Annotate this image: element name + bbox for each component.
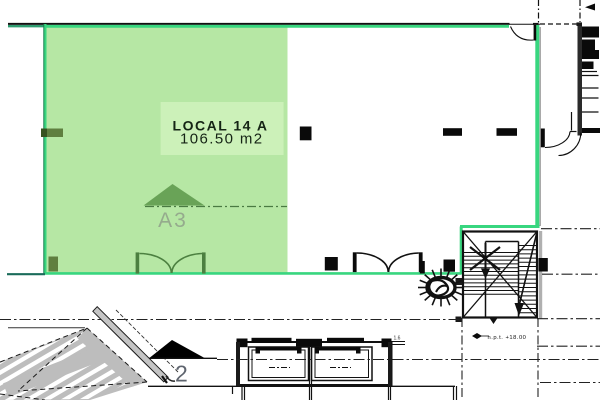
svg-text:n.p.t. +18.00: n.p.t. +18.00 bbox=[488, 335, 527, 341]
svg-text:2: 2 bbox=[175, 361, 188, 387]
svg-text:106.50 m2: 106.50 m2 bbox=[180, 131, 263, 148]
svg-text:1.6: 1.6 bbox=[394, 336, 401, 342]
svg-text:A3: A3 bbox=[158, 209, 188, 232]
